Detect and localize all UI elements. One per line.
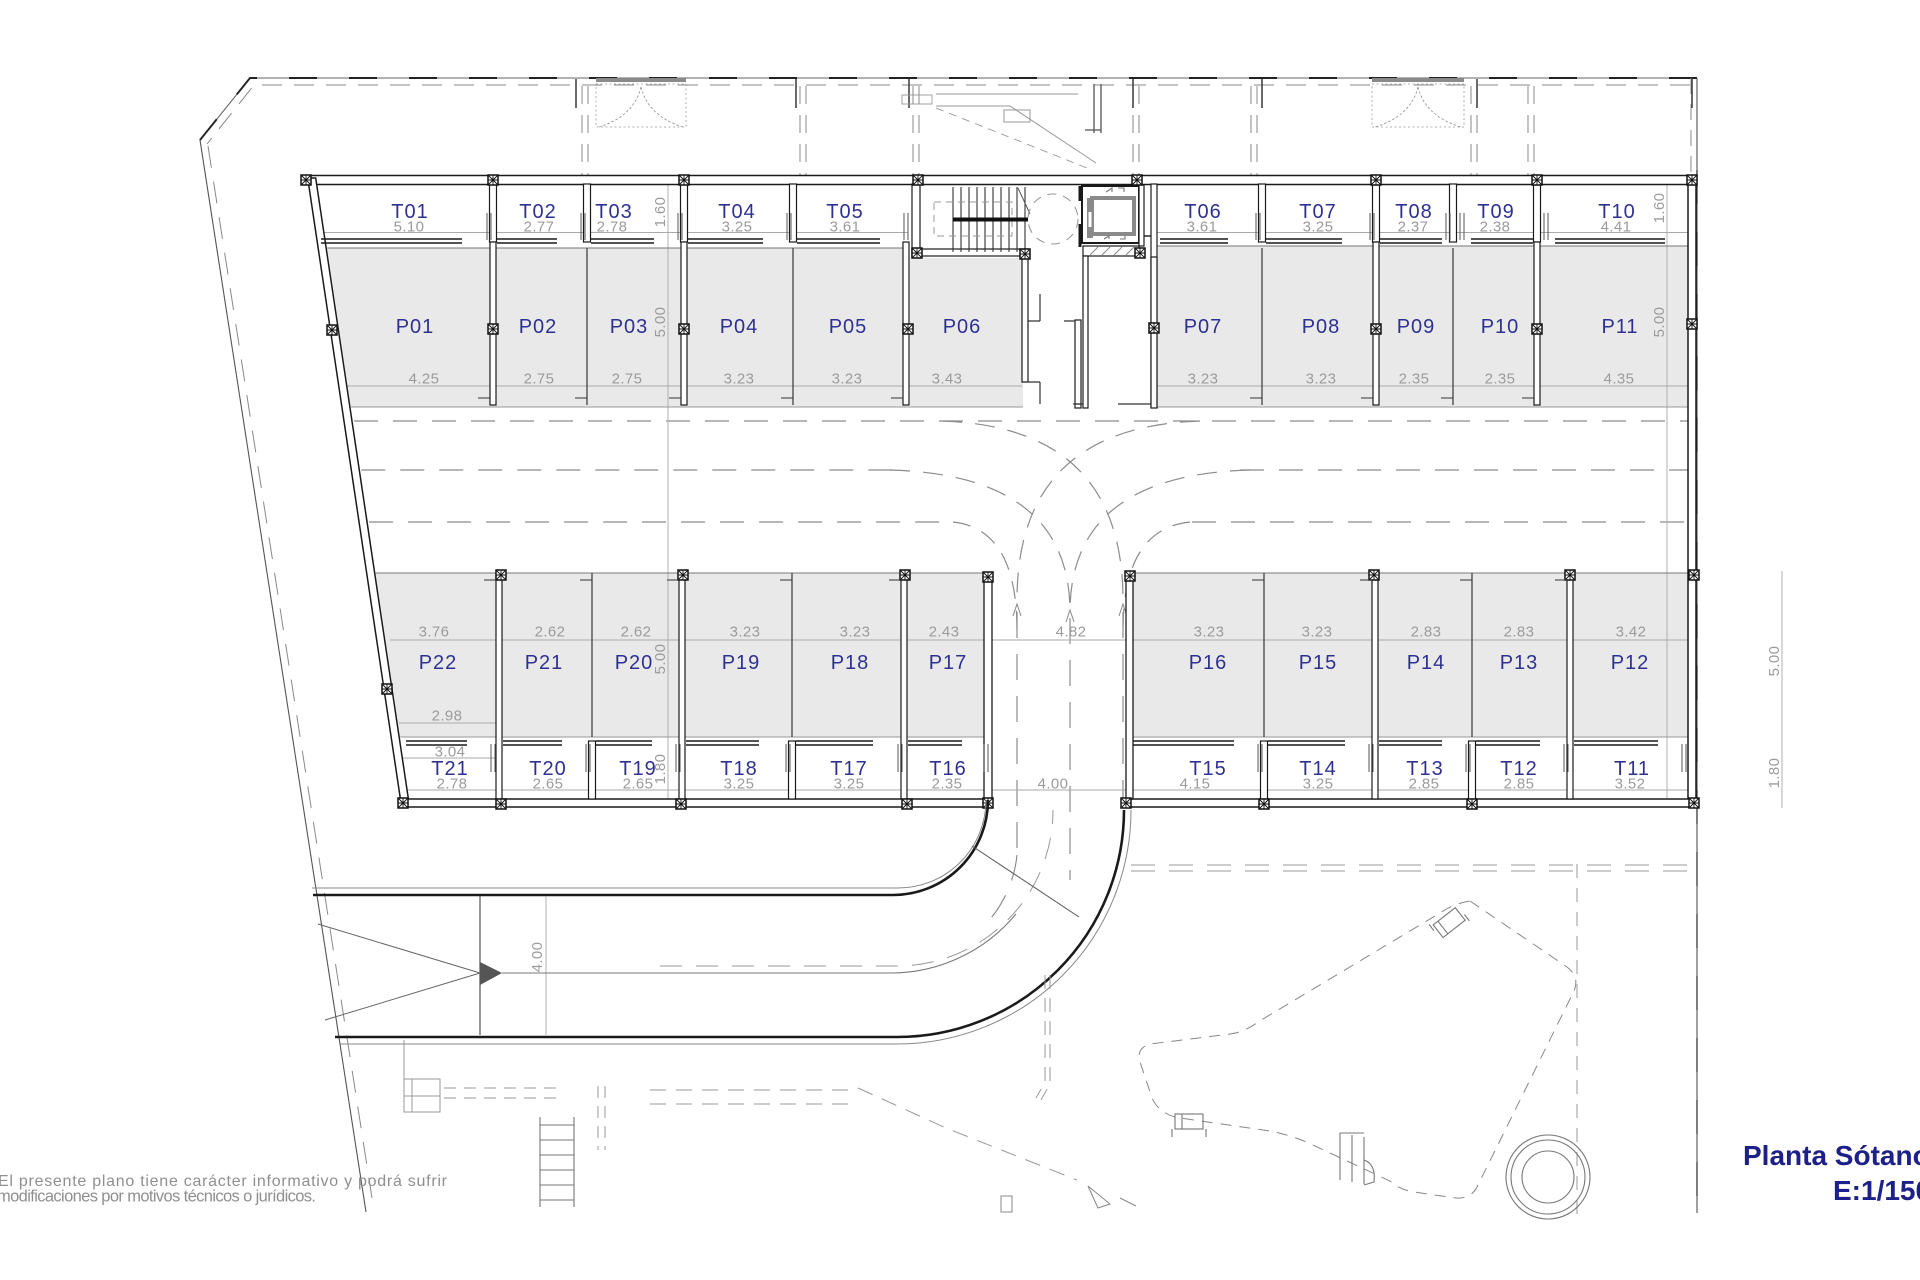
svg-text:2.85: 2.85 (1409, 776, 1440, 793)
svg-text:P17: P17 (929, 652, 968, 674)
svg-text:3.42: 3.42 (1616, 624, 1647, 641)
svg-text:2.38: 2.38 (1480, 219, 1511, 236)
svg-text:P18: P18 (831, 652, 870, 674)
svg-text:2.78: 2.78 (437, 776, 468, 793)
svg-text:4.35: 4.35 (1604, 371, 1635, 388)
svg-text:2.83: 2.83 (1411, 624, 1442, 641)
svg-text:P15: P15 (1299, 652, 1338, 674)
svg-text:3.61: 3.61 (1187, 219, 1218, 236)
svg-text:P16: P16 (1189, 652, 1228, 674)
svg-text:2.65: 2.65 (623, 776, 654, 793)
svg-text:2.85: 2.85 (1504, 776, 1535, 793)
svg-text:5.00: 5.00 (652, 307, 669, 338)
svg-text:3.25: 3.25 (722, 219, 753, 236)
svg-text:P14: P14 (1407, 652, 1446, 674)
svg-text:2.43: 2.43 (929, 624, 960, 641)
svg-text:3.25: 3.25 (834, 776, 865, 793)
svg-text:P02: P02 (519, 316, 558, 338)
svg-text:5.00: 5.00 (652, 644, 669, 675)
svg-text:3.43: 3.43 (932, 371, 963, 388)
svg-text:3.76: 3.76 (419, 624, 450, 641)
svg-text:P06: P06 (943, 316, 982, 338)
svg-text:P01: P01 (396, 316, 435, 338)
svg-text:modificaciones por motivos téc: modificaciones por motivos técnicos o ju… (0, 1188, 316, 1206)
svg-text:4.41: 4.41 (1601, 219, 1632, 236)
svg-text:2.35: 2.35 (1485, 371, 1516, 388)
svg-text:P07: P07 (1184, 316, 1223, 338)
svg-text:1.80: 1.80 (652, 754, 669, 785)
svg-text:Planta Sótano: Planta Sótano (1743, 1140, 1920, 1171)
svg-text:P03: P03 (610, 316, 649, 338)
svg-text:3.23: 3.23 (840, 624, 871, 641)
svg-text:3.23: 3.23 (724, 371, 755, 388)
svg-text:P11: P11 (1601, 316, 1638, 338)
svg-text:2.37: 2.37 (1398, 219, 1429, 236)
svg-text:2.35: 2.35 (932, 776, 963, 793)
svg-text:5.10: 5.10 (394, 219, 425, 236)
svg-text:4.00: 4.00 (1038, 776, 1069, 793)
svg-text:4.82: 4.82 (1056, 624, 1087, 641)
svg-text:3.23: 3.23 (1188, 371, 1219, 388)
svg-text:1.60: 1.60 (652, 197, 669, 228)
svg-text:P12: P12 (1611, 652, 1650, 674)
svg-text:2.65: 2.65 (533, 776, 564, 793)
svg-text:P19: P19 (722, 652, 761, 674)
svg-text:4.25: 4.25 (409, 371, 440, 388)
svg-text:P04: P04 (720, 316, 759, 338)
svg-text:2.75: 2.75 (612, 371, 643, 388)
svg-text:P08: P08 (1302, 316, 1341, 338)
svg-text:P22: P22 (419, 652, 458, 674)
svg-text:3.23: 3.23 (1302, 624, 1333, 641)
svg-text:2.78: 2.78 (597, 219, 628, 236)
svg-text:P13: P13 (1500, 652, 1539, 674)
svg-text:P20: P20 (615, 652, 654, 674)
svg-text:2.83: 2.83 (1504, 624, 1535, 641)
svg-text:3.23: 3.23 (1306, 371, 1337, 388)
svg-text:2.62: 2.62 (621, 624, 652, 641)
svg-text:E:1/150: E:1/150 (1833, 1175, 1920, 1206)
svg-text:3.23: 3.23 (832, 371, 863, 388)
svg-text:2.35: 2.35 (1399, 371, 1430, 388)
svg-text:5.00: 5.00 (1651, 307, 1668, 338)
svg-text:1.80: 1.80 (1766, 758, 1783, 789)
svg-text:2.75: 2.75 (524, 371, 555, 388)
svg-text:3.23: 3.23 (1194, 624, 1225, 641)
svg-text:3.25: 3.25 (724, 776, 755, 793)
svg-text:4.00: 4.00 (529, 942, 546, 973)
svg-text:3.23: 3.23 (730, 624, 761, 641)
svg-text:3.61: 3.61 (830, 219, 861, 236)
svg-text:1.60: 1.60 (1651, 193, 1668, 224)
svg-text:5.00: 5.00 (1766, 646, 1783, 677)
svg-text:3.25: 3.25 (1303, 219, 1334, 236)
svg-text:P05: P05 (829, 316, 868, 338)
svg-text:2.77: 2.77 (524, 219, 555, 236)
svg-text:P09: P09 (1397, 316, 1436, 338)
svg-text:2.62: 2.62 (535, 624, 566, 641)
svg-text:P10: P10 (1481, 316, 1520, 338)
svg-text:2.98: 2.98 (432, 708, 463, 725)
svg-text:3.52: 3.52 (1615, 776, 1646, 793)
svg-text:3.25: 3.25 (1303, 776, 1334, 793)
svg-text:P21: P21 (525, 652, 564, 674)
svg-text:4.15: 4.15 (1180, 776, 1211, 793)
